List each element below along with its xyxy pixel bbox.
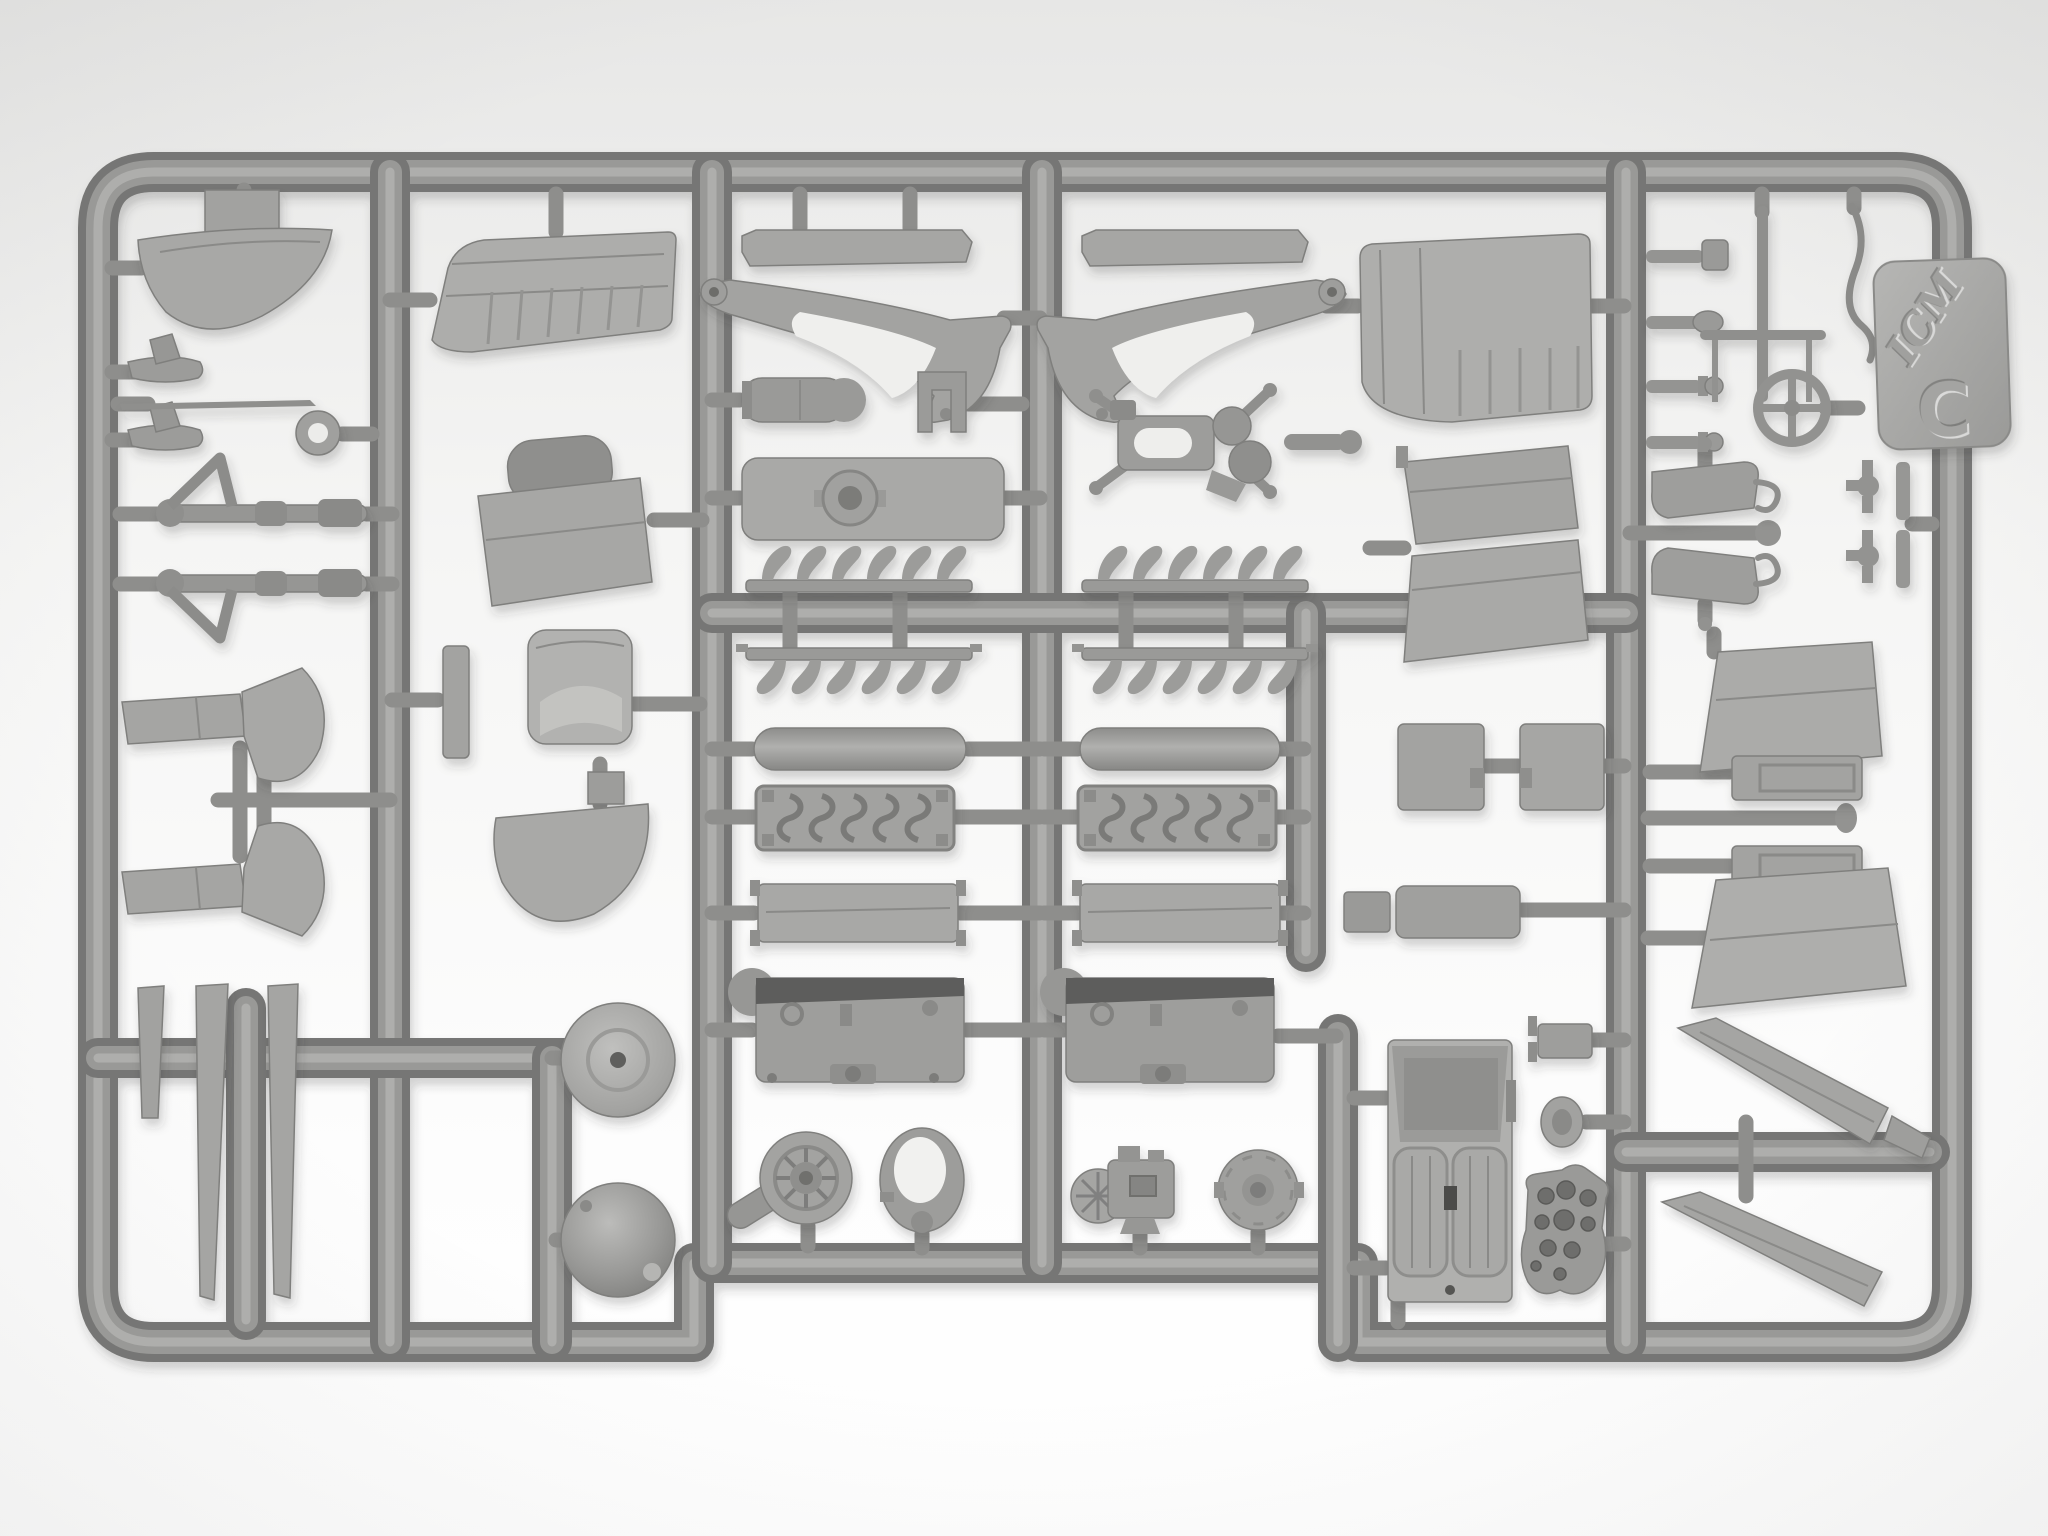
seat-back-part [528, 630, 632, 744]
walkway-strip-part [742, 230, 972, 266]
access-oval-part [1541, 1097, 1583, 1147]
fuselage-side-panel-part-2 [1692, 868, 1906, 1008]
engine-cylinder-part-2 [1080, 728, 1280, 770]
engine-side-panel-part-2 [1072, 880, 1288, 946]
instrument-panel-part [1521, 1165, 1608, 1294]
radio-box-part [1398, 724, 1484, 810]
control-handwheel-part [1758, 374, 1826, 442]
sprue-photo: ICM ICM ICM C C C [0, 0, 2048, 1536]
fuel-tank-half-part [1732, 756, 1862, 800]
sprue-letter: C C C [1914, 365, 1974, 457]
equipment-box-part [1344, 886, 1520, 938]
fuselage-side-panel-part [1700, 642, 1882, 772]
cockpit-floor-with-seats-part [1388, 1040, 1516, 1302]
wheel-disc-part [561, 1003, 675, 1117]
tow-ring-part [296, 411, 340, 455]
spacer-strip-part [443, 646, 469, 758]
valve-cover-part [756, 786, 954, 850]
walkway-strip-part-2 [1082, 230, 1308, 266]
aileron-flap-part [1396, 446, 1578, 544]
engine-cylinder-part [754, 728, 966, 770]
upper-wing-panel-right-part [1360, 234, 1592, 422]
sprue-letter-text: C [1915, 367, 1972, 455]
valve-cover-part-2 [1078, 786, 1276, 850]
engine-side-panel-part [750, 880, 966, 946]
crankcase-part [728, 968, 964, 1084]
access-panel-part [742, 458, 1004, 540]
intake-ring-part [880, 1128, 964, 1233]
aileron-flap-part-2 [1404, 540, 1588, 662]
spinner-dome-part [561, 1183, 675, 1297]
brand-tag: ICM ICM ICM C C C [1871, 257, 2011, 459]
sprue-photo-canvas: ICM ICM ICM C C C [0, 0, 2048, 1536]
radio-box-part-2 [1520, 724, 1604, 810]
bomb-part [742, 378, 866, 422]
crankcase-part-2 [1040, 968, 1274, 1084]
